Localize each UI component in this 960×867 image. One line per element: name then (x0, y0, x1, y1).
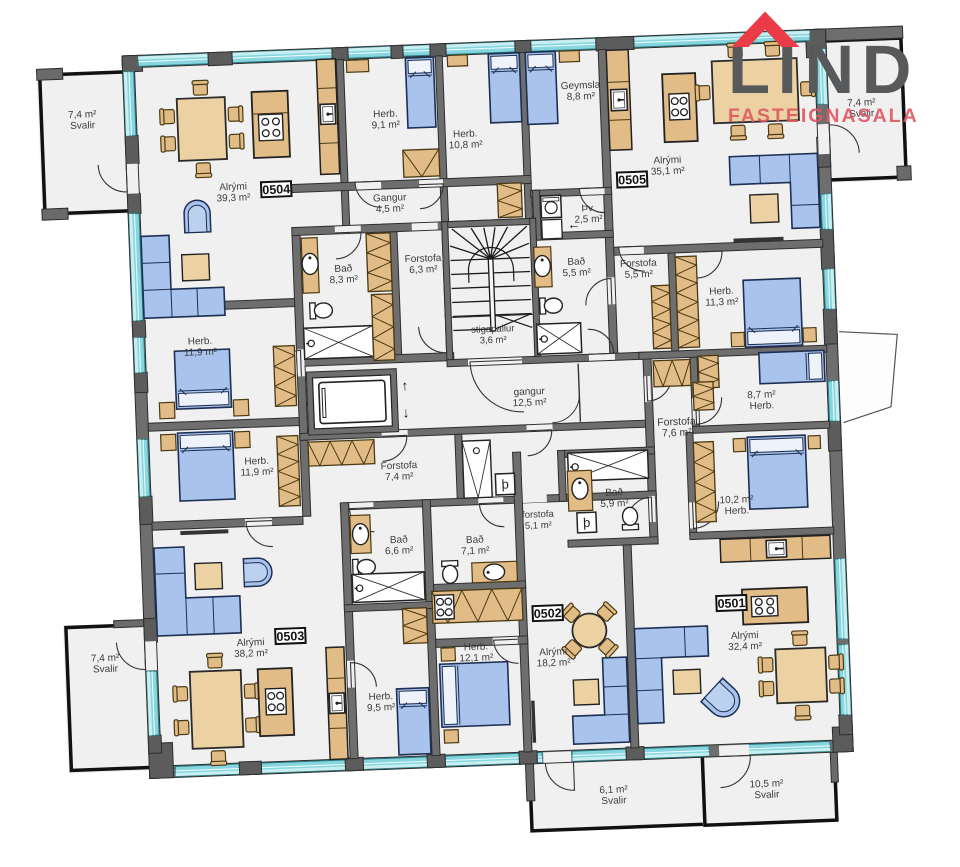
svg-text:0502: 0502 (534, 606, 562, 621)
svg-text:þ: þ (583, 515, 591, 530)
svg-text:4,5 m²: 4,5 m² (376, 203, 405, 215)
svg-text:Herb.: Herb. (464, 641, 489, 653)
svg-text:6,3 m²: 6,3 m² (409, 264, 438, 276)
svg-text:Bað: Bað (390, 533, 409, 546)
svg-text:10,8 m²: 10,8 m² (449, 139, 484, 151)
svg-text:Herb.: Herb. (188, 336, 213, 348)
svg-text:FASTEIGNASALA: FASTEIGNASALA (728, 105, 919, 127)
svg-text:0501: 0501 (717, 596, 745, 611)
svg-text:Svalir: Svalir (601, 795, 627, 807)
svg-text:10,2 m²: 10,2 m² (719, 494, 754, 506)
svg-text:Svalir: Svalir (754, 789, 780, 801)
svg-text:Bað: Bað (567, 255, 586, 268)
svg-text:9,5 m²: 9,5 m² (367, 702, 396, 714)
svg-text:7,1 m²: 7,1 m² (461, 545, 490, 557)
svg-text:Herb.: Herb. (724, 505, 749, 517)
svg-text:8,3 m²: 8,3 m² (329, 274, 358, 286)
svg-text:12,1 m²: 12,1 m² (459, 652, 494, 664)
svg-text:↑: ↑ (401, 377, 409, 393)
svg-text:12,5 m²: 12,5 m² (512, 397, 547, 409)
svg-text:0505: 0505 (618, 172, 646, 187)
svg-text:Herb.: Herb. (368, 691, 393, 703)
svg-text:2,5 m²: 2,5 m² (574, 214, 603, 226)
svg-text:↓: ↓ (402, 404, 410, 420)
svg-text:Herb.: Herb. (373, 108, 398, 120)
svg-text:11,3 m²: 11,3 m² (705, 296, 739, 308)
svg-text:7,6 m²: 7,6 m² (662, 426, 693, 439)
svg-text:11,9 m²: 11,9 m² (240, 466, 274, 478)
svg-text:0504: 0504 (262, 182, 290, 197)
svg-text:5,5 m²: 5,5 m² (562, 267, 591, 279)
svg-text:5,9 m²: 5,9 m² (600, 498, 629, 510)
svg-text:þ: þ (501, 476, 509, 491)
svg-text:32,4 m²: 32,4 m² (728, 641, 763, 653)
svg-text:8,8 m²: 8,8 m² (567, 91, 596, 103)
svg-text:Herb.: Herb. (453, 128, 478, 140)
svg-text:LIND: LIND (728, 31, 919, 108)
svg-text:Bað: Bað (605, 486, 624, 499)
svg-text:Herb.: Herb. (244, 456, 269, 468)
svg-text:6,6 m²: 6,6 m² (385, 545, 414, 557)
svg-text:Bað: Bað (334, 262, 353, 275)
svg-text:3,6 m²: 3,6 m² (480, 334, 507, 346)
svg-text:Svalir: Svalir (93, 664, 119, 676)
svg-text:Bað: Bað (466, 533, 485, 546)
svg-text:Herb.: Herb. (749, 400, 774, 412)
svg-text:39,3 m²: 39,3 m² (216, 192, 251, 204)
svg-text:5,1 m²: 5,1 m² (525, 520, 552, 532)
svg-text:9,1 m²: 9,1 m² (371, 119, 400, 131)
svg-text:35,1 m²: 35,1 m² (651, 165, 686, 177)
svg-text:38,2 m²: 38,2 m² (234, 648, 269, 660)
svg-text:Þv.: Þv. (581, 203, 595, 215)
svg-text:11,9 m²: 11,9 m² (184, 347, 218, 359)
svg-text:7,4 m²: 7,4 m² (385, 471, 414, 483)
svg-text:Herb.: Herb. (709, 286, 734, 298)
svg-text:Svalir: Svalir (70, 120, 96, 132)
svg-text:5,5 m²: 5,5 m² (624, 269, 653, 281)
svg-text:18,2 m²: 18,2 m² (536, 657, 571, 669)
svg-text:0503: 0503 (276, 629, 304, 644)
svg-text:stigapallur: stigapallur (471, 323, 515, 336)
